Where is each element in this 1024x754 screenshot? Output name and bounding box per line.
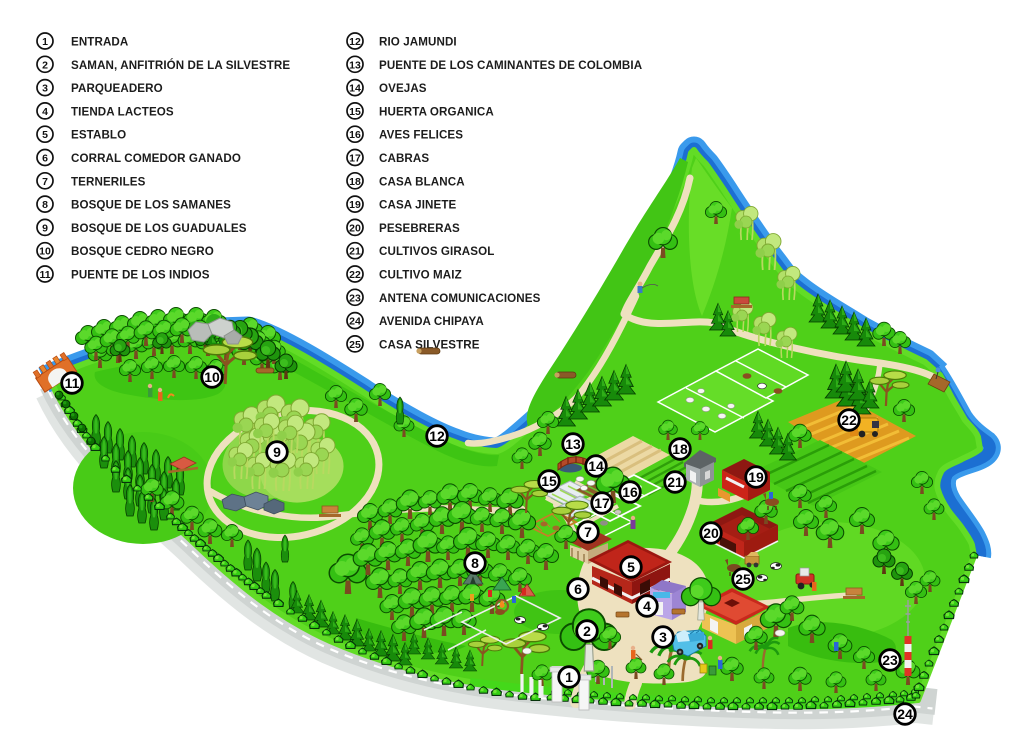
svg-text:8: 8 <box>42 199 48 211</box>
svg-text:21: 21 <box>667 474 683 490</box>
svg-text:PUENTE DE LOS CAMINANTES DE CO: PUENTE DE LOS CAMINANTES DE COLOMBIA <box>379 59 643 72</box>
svg-text:25: 25 <box>349 339 361 351</box>
svg-text:10: 10 <box>204 369 220 385</box>
svg-text:12: 12 <box>349 36 361 48</box>
svg-text:5: 5 <box>627 559 635 575</box>
svg-text:19: 19 <box>748 469 764 485</box>
svg-text:12: 12 <box>429 428 445 444</box>
svg-text:HUERTA ORGANICA: HUERTA ORGANICA <box>379 105 494 118</box>
svg-text:AVENIDA CHIPAYA: AVENIDA CHIPAYA <box>379 315 484 328</box>
svg-text:PARQUEADERO: PARQUEADERO <box>71 82 163 95</box>
svg-text:4: 4 <box>42 106 48 118</box>
svg-text:23: 23 <box>349 292 361 304</box>
svg-text:1: 1 <box>42 36 48 48</box>
svg-text:TIENDA LACTEOS: TIENDA LACTEOS <box>71 105 174 118</box>
svg-text:AVES FELICES: AVES FELICES <box>379 129 463 142</box>
svg-text:BOSQUE DE LOS GUADUALES: BOSQUE DE LOS GUADUALES <box>71 222 247 235</box>
svg-text:11: 11 <box>65 375 80 391</box>
svg-text:16: 16 <box>349 129 361 141</box>
svg-text:19: 19 <box>349 199 361 211</box>
svg-text:25: 25 <box>735 571 751 587</box>
svg-text:15: 15 <box>541 473 557 489</box>
svg-text:17: 17 <box>349 153 361 165</box>
svg-text:11: 11 <box>39 269 50 281</box>
svg-text:TERNERILES: TERNERILES <box>71 175 146 188</box>
svg-text:20: 20 <box>703 525 719 541</box>
svg-text:8: 8 <box>471 555 479 571</box>
svg-text:CULTIVO MAIZ: CULTIVO MAIZ <box>379 269 462 282</box>
svg-text:24: 24 <box>349 316 361 328</box>
svg-text:9: 9 <box>42 222 48 234</box>
svg-text:16: 16 <box>622 484 638 500</box>
svg-text:23: 23 <box>882 652 898 668</box>
svg-text:ANTENA COMUNICACIONES: ANTENA COMUNICACIONES <box>379 292 541 305</box>
svg-text:13: 13 <box>349 59 361 71</box>
svg-text:3: 3 <box>659 629 667 645</box>
svg-text:PUENTE DE LOS INDIOS: PUENTE DE LOS INDIOS <box>71 269 210 282</box>
svg-text:10: 10 <box>39 246 51 258</box>
svg-text:18: 18 <box>672 441 688 457</box>
svg-text:21: 21 <box>349 246 361 258</box>
svg-text:24: 24 <box>897 706 913 722</box>
svg-text:RIO JAMUNDI: RIO JAMUNDI <box>379 36 457 49</box>
svg-text:14: 14 <box>588 458 604 474</box>
svg-text:9: 9 <box>273 444 281 460</box>
svg-text:22: 22 <box>349 269 361 281</box>
svg-text:2: 2 <box>42 59 48 71</box>
svg-text:15: 15 <box>349 106 361 118</box>
svg-text:BOSQUE CEDRO NEGRO: BOSQUE CEDRO NEGRO <box>71 245 214 258</box>
svg-text:22: 22 <box>841 412 857 428</box>
svg-text:13: 13 <box>565 436 581 452</box>
svg-text:14: 14 <box>349 83 361 95</box>
svg-text:7: 7 <box>584 524 592 540</box>
svg-text:CASA JINETE: CASA JINETE <box>379 199 456 212</box>
svg-text:CASA BLANCA: CASA BLANCA <box>379 175 465 188</box>
svg-text:CORRAL COMEDOR GANADO: CORRAL COMEDOR GANADO <box>71 152 241 165</box>
svg-text:3: 3 <box>42 83 48 95</box>
svg-text:1: 1 <box>565 669 573 685</box>
svg-text:20: 20 <box>349 222 361 234</box>
svg-text:2: 2 <box>583 623 591 639</box>
svg-text:CULTIVOS GIRASOL: CULTIVOS GIRASOL <box>379 245 494 258</box>
svg-text:4: 4 <box>643 598 651 614</box>
svg-text:5: 5 <box>42 129 48 141</box>
svg-text:7: 7 <box>42 176 48 188</box>
svg-text:17: 17 <box>594 495 610 511</box>
svg-text:ESTABLO: ESTABLO <box>71 129 126 142</box>
svg-text:18: 18 <box>349 176 361 188</box>
svg-text:CABRAS: CABRAS <box>379 152 429 165</box>
svg-text:BOSQUE DE LOS SAMANES: BOSQUE DE LOS SAMANES <box>71 199 231 212</box>
svg-text:6: 6 <box>42 153 48 165</box>
svg-text:PESEBRERAS: PESEBRERAS <box>379 222 460 235</box>
svg-text:OVEJAS: OVEJAS <box>379 82 427 95</box>
svg-text:SAMAN, ANFITRIÓN DE LA SILVEST: SAMAN, ANFITRIÓN DE LA SILVESTRE <box>71 59 290 72</box>
svg-text:6: 6 <box>574 581 582 597</box>
svg-text:ENTRADA: ENTRADA <box>71 36 129 49</box>
